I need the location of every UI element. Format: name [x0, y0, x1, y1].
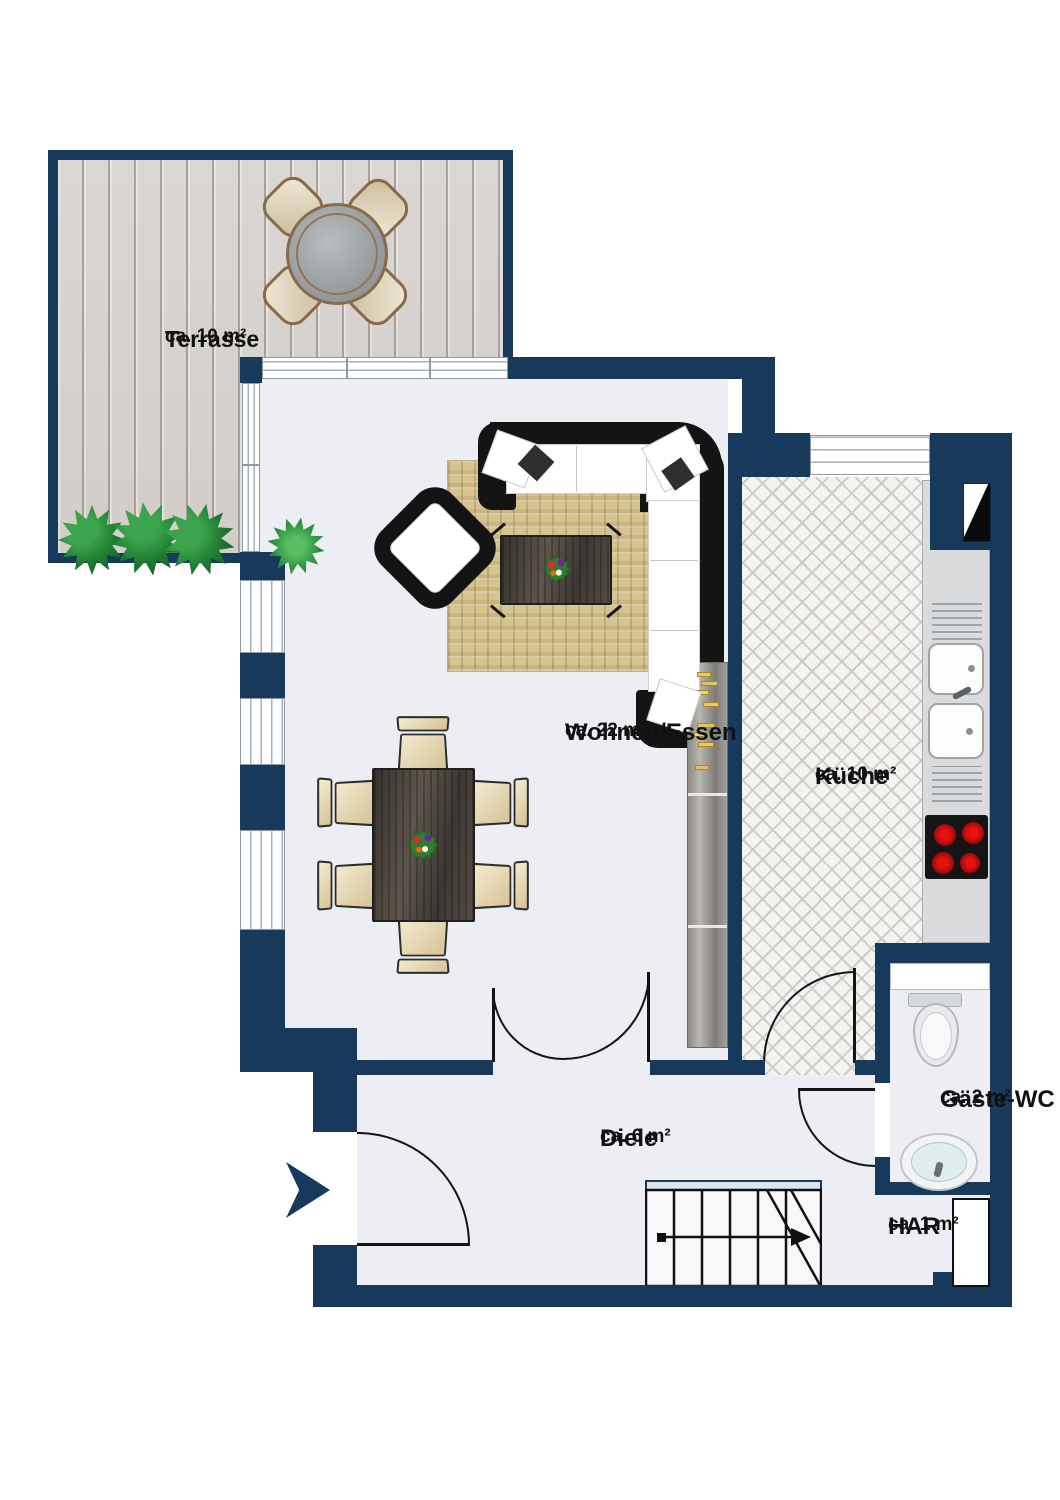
wc-window [890, 963, 990, 990]
wall-left [240, 653, 285, 698]
wall-kitchen-bottom [742, 1060, 765, 1075]
cooktop-burner [960, 853, 980, 873]
room-area: ca. 2 m² [940, 1087, 1011, 1109]
dining-chair-backrest [317, 860, 332, 910]
double-door-leaf-right [647, 972, 650, 1062]
wall-kitchen-left [728, 433, 742, 1075]
window-living-left [240, 698, 285, 765]
dining-chair-backrest [514, 860, 529, 910]
wall-living-bottom [357, 1060, 493, 1075]
counter-drainboard-lines [932, 766, 982, 802]
double-door-leaf-left [492, 988, 495, 1062]
window-living-left [242, 383, 260, 552]
terrace-wall-top [48, 150, 513, 160]
floorplan: Terrasse ca. 10 m² Wohnen/Essen ca. 22 m… [0, 0, 1060, 1500]
wall-wc-left [875, 952, 890, 1083]
terrace-wall-left [48, 150, 58, 563]
wc-door-leaf [798, 1088, 875, 1091]
dining-chair-seat [398, 917, 449, 956]
terrace-wall-right [503, 150, 513, 379]
wall-kitchen-top [742, 433, 810, 477]
sofa-seat-divider [650, 560, 698, 561]
dining-chair-backrest [514, 777, 529, 827]
wall-wc-top [875, 943, 1012, 963]
wall-hall-left [313, 1072, 357, 1132]
window-living-left [240, 580, 285, 653]
window-divider [243, 464, 259, 466]
cooktop-burner [934, 824, 956, 846]
entrance-arrow-icon [286, 1162, 330, 1218]
window-divider [346, 358, 348, 378]
sink-drain-dot [968, 665, 975, 672]
room-area: ca. 1 m² [888, 1214, 959, 1236]
har-door [952, 1198, 990, 1287]
toilet-bowl-inner [920, 1012, 952, 1060]
wall-bottom-exterior [357, 1285, 1012, 1307]
wall-right-exterior [990, 433, 1012, 1307]
flue-symbol [963, 483, 991, 542]
stairs [645, 1180, 822, 1288]
dining-chair-backrest [317, 777, 332, 827]
dining-chair-backrest [396, 716, 449, 731]
sofa-seat-divider [576, 446, 577, 492]
kitchen-door-leaf [853, 968, 856, 1063]
wall-step [240, 1028, 357, 1072]
shelf-books [695, 765, 709, 770]
entrance-door-leaf [357, 1243, 470, 1246]
wall-living-bottom [650, 1060, 728, 1075]
sofa-seat-divider [650, 630, 698, 631]
window-living-left [240, 830, 285, 930]
terrace-table-inner-ring [296, 213, 378, 295]
sofa-seat-right [648, 500, 700, 692]
shelf-books [703, 702, 719, 707]
dining-chair-seat [335, 780, 376, 827]
window-kitchen [810, 435, 930, 475]
dining-chair-seat [335, 863, 376, 910]
shelf-gap [688, 793, 727, 796]
wall-kitchen-bottom [855, 1060, 875, 1075]
room-area: ca. 10 m² [815, 764, 896, 786]
wall-left [240, 765, 285, 830]
room-area: ca. 6 m² [600, 1126, 671, 1148]
cooktop-burner [962, 822, 984, 844]
wall-top-living [508, 357, 775, 379]
room-area: ca. 10 m² [165, 326, 246, 348]
window-divider [429, 358, 431, 378]
room-area: ca. 22 m² [565, 720, 646, 742]
dining-chair-seat [470, 780, 511, 827]
dining-chair-backrest [396, 959, 449, 974]
shelf-books [701, 681, 718, 686]
cooktop-burner [932, 852, 954, 874]
kitchen-sink [928, 703, 984, 759]
shelf-gap [688, 925, 727, 928]
sink-drain-dot [966, 728, 973, 735]
kitchen-sink [928, 643, 984, 695]
shelf-books [697, 672, 711, 677]
wall-left [240, 930, 285, 1028]
dining-chair-seat [398, 734, 449, 773]
dining-chair-seat [470, 863, 511, 910]
wall-corner [240, 357, 262, 383]
window-terrace-band [262, 357, 508, 379]
wall-hall-left [313, 1245, 357, 1307]
counter-vent-lines [932, 600, 982, 640]
